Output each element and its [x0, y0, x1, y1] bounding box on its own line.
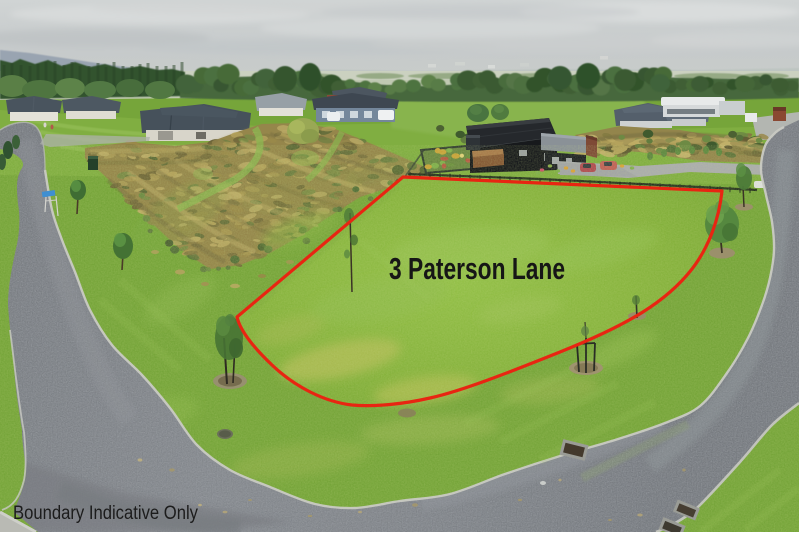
svg-text:3 Paterson Lane: 3 Paterson Lane	[389, 251, 565, 286]
svg-text:Boundary Indicative Only: Boundary Indicative Only	[13, 503, 198, 524]
